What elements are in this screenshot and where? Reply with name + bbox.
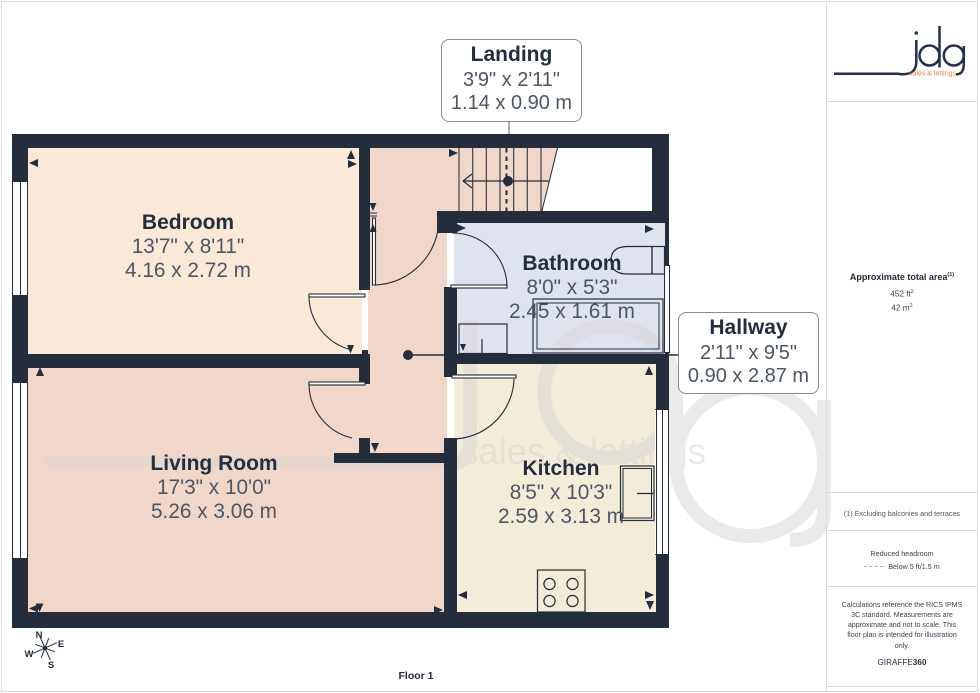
svg-text:W: W	[25, 649, 34, 660]
svg-text:sales & lettings: sales & lettings	[909, 69, 956, 78]
svg-text:E: E	[58, 639, 64, 650]
svg-text:S: S	[48, 660, 54, 671]
svg-text:N: N	[36, 630, 43, 641]
